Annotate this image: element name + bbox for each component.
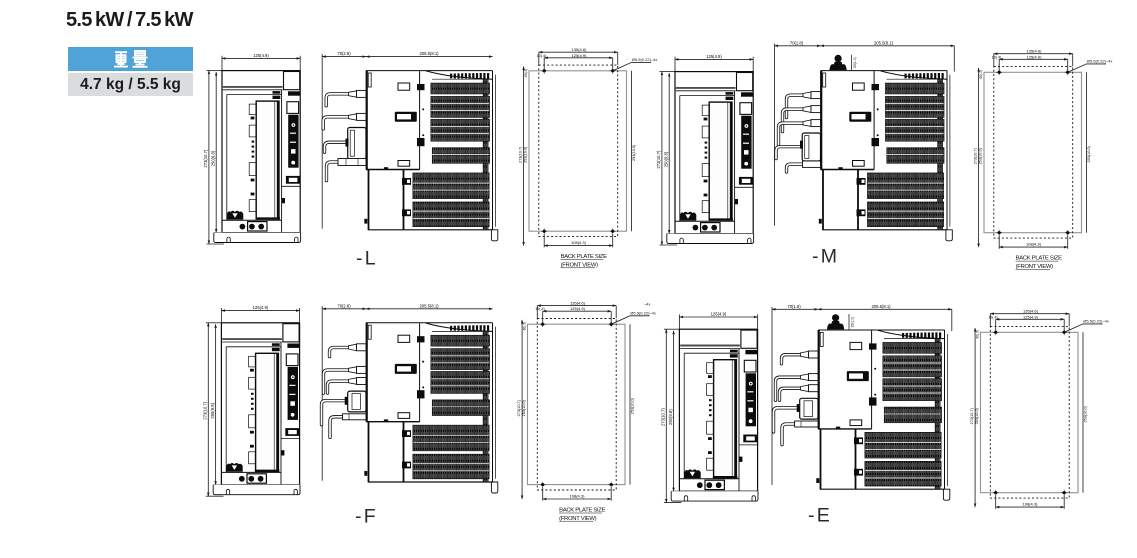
svg-text:-M: -M	[812, 246, 839, 268]
svg-text:–4x: –4x	[644, 302, 650, 307]
svg-text:-L: -L	[356, 248, 378, 270]
svg-text:-F: -F	[355, 506, 378, 528]
svg-text:-E: -E	[808, 505, 832, 527]
